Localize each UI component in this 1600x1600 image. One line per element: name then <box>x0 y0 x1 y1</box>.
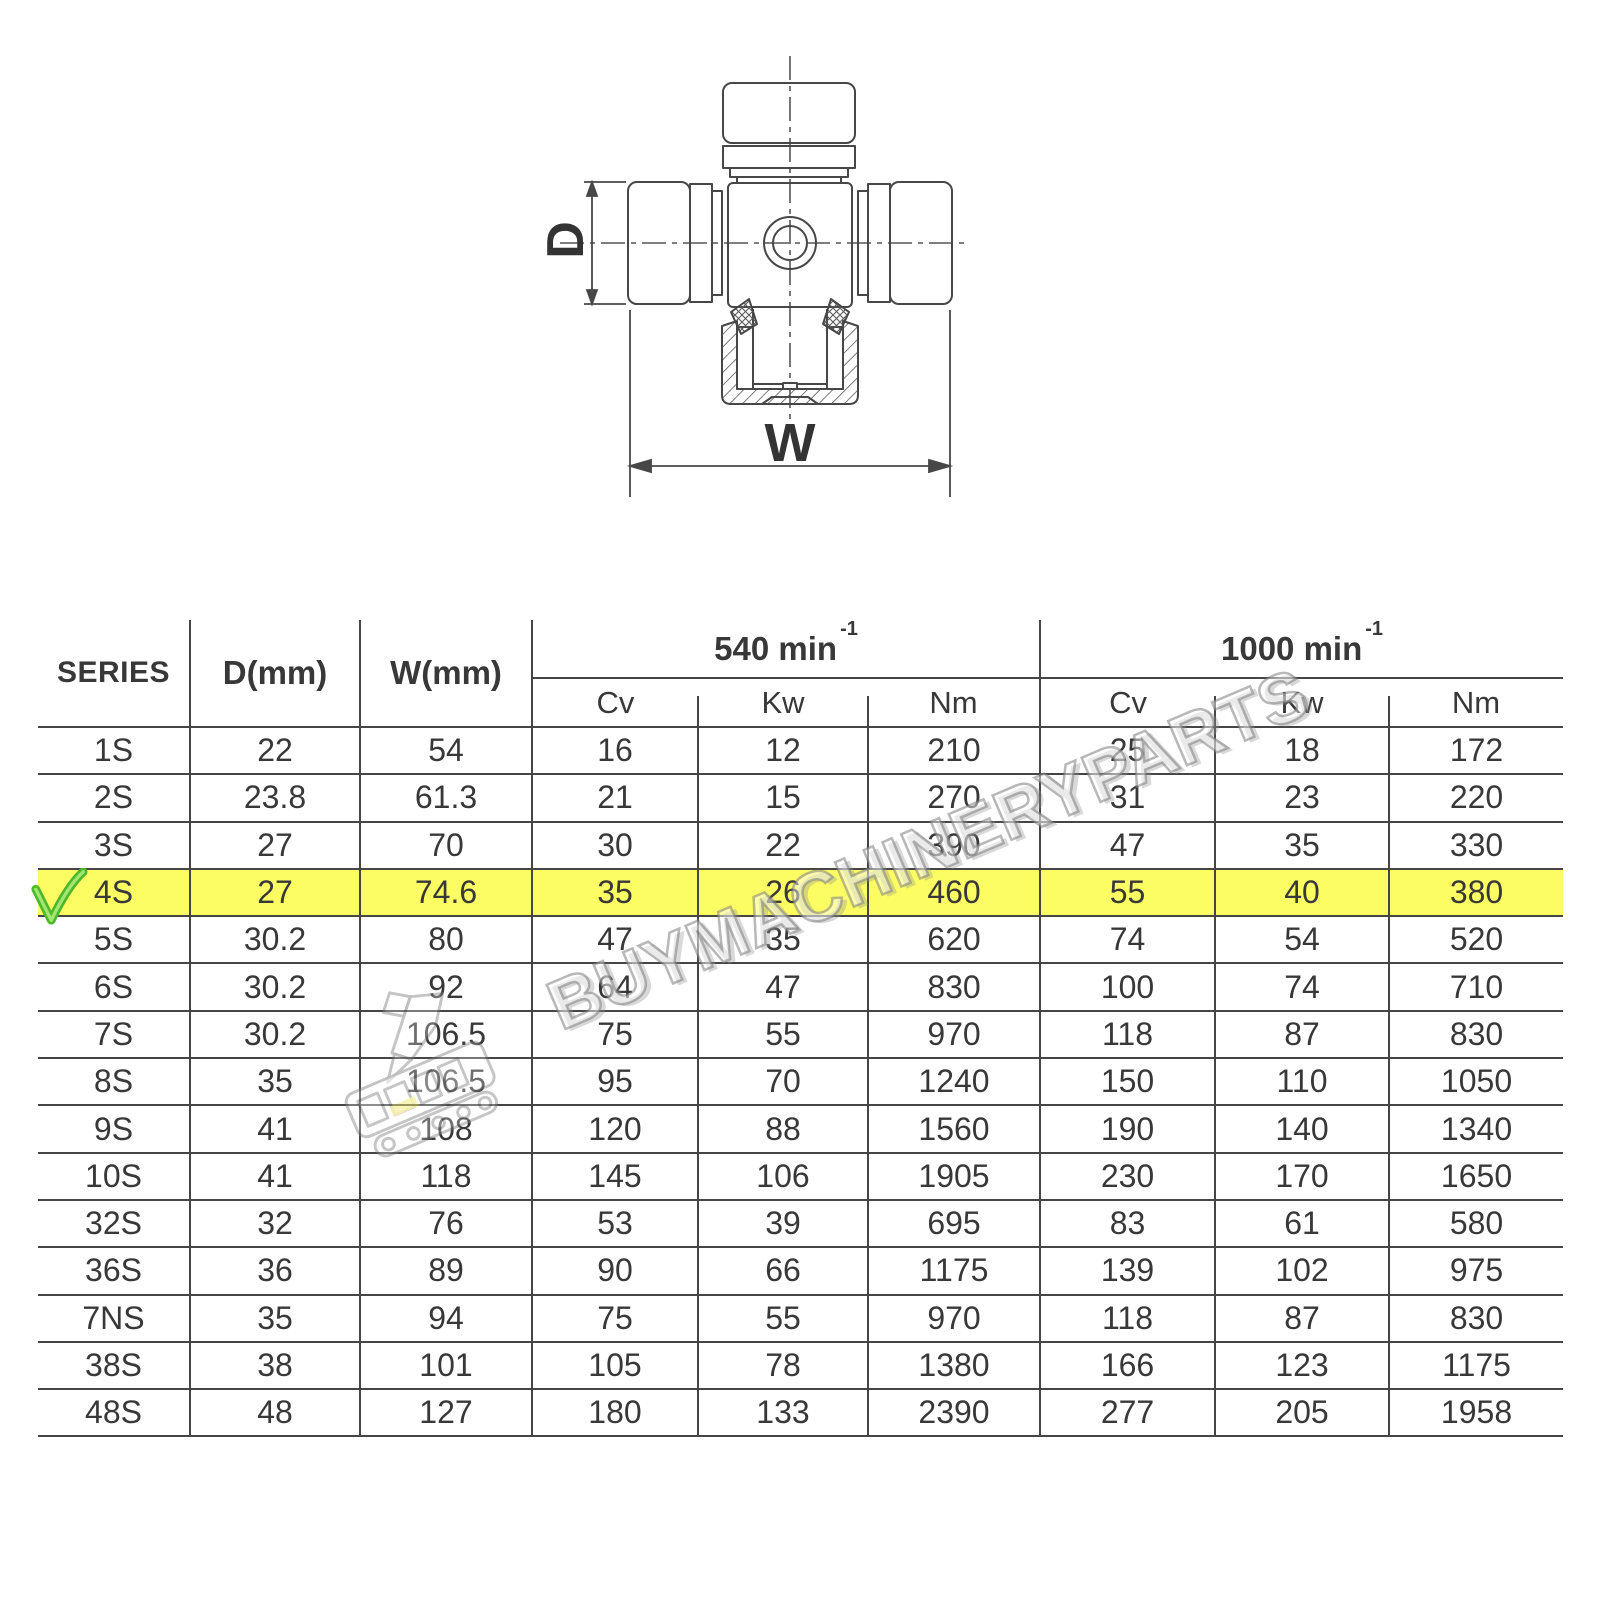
value-cell: 1905 <box>868 1153 1040 1200</box>
spec-sheet: D W BUYMACHINERYPARTS <box>0 0 1600 1600</box>
value-cell: 105 <box>532 1342 698 1389</box>
series-cell: 8S <box>38 1058 190 1105</box>
value-cell: 975 <box>1389 1247 1563 1294</box>
value-cell: 695 <box>868 1200 1040 1247</box>
table-row: 2S23.861.321152703123220 <box>38 774 1563 821</box>
value-cell: 1958 <box>1389 1389 1563 1436</box>
table-row: 10S4111814510619052301701650 <box>38 1153 1563 1200</box>
dimension-label-w: W <box>765 413 816 473</box>
value-cell: 41 <box>190 1105 360 1152</box>
value-cell: 39 <box>698 1200 868 1247</box>
value-cell: 74 <box>1215 963 1389 1010</box>
value-cell: 460 <box>868 869 1040 916</box>
universal-joint-drawing: D W <box>500 40 980 510</box>
header-series: SERIES <box>38 620 190 727</box>
value-cell: 710 <box>1389 963 1563 1010</box>
value-cell: 15 <box>698 774 868 821</box>
value-cell: 53 <box>532 1200 698 1247</box>
header-cv-1000: Cv <box>1040 678 1215 727</box>
value-cell: 106.5 <box>360 1058 532 1105</box>
needle-roller-left <box>737 327 753 389</box>
value-cell: 127 <box>360 1389 532 1436</box>
value-cell: 118 <box>1040 1295 1215 1342</box>
value-cell: 150 <box>1040 1058 1215 1105</box>
dimension-label-d: D <box>537 221 595 259</box>
series-cell: 2S <box>38 774 190 821</box>
value-cell: 66 <box>698 1247 868 1294</box>
value-cell: 47 <box>532 916 698 963</box>
value-cell: 38 <box>190 1342 360 1389</box>
table-header: SERIES D(mm) W(mm) 540 min-1 1000 min-1 … <box>38 620 1563 727</box>
header-w-mm: W(mm) <box>360 620 532 727</box>
header-nm-540: Nm <box>868 678 1040 727</box>
value-cell: 47 <box>1040 822 1215 869</box>
series-cell: 9S <box>38 1105 190 1152</box>
value-cell: 74.6 <box>360 869 532 916</box>
value-cell: 102 <box>1215 1247 1389 1294</box>
value-cell: 48 <box>190 1389 360 1436</box>
value-cell: 133 <box>698 1389 868 1436</box>
series-cell: 38S <box>38 1342 190 1389</box>
series-cell: 1S <box>38 727 190 774</box>
value-cell: 330 <box>1389 822 1563 869</box>
value-cell: 1175 <box>868 1247 1040 1294</box>
value-cell: 230 <box>1040 1153 1215 1200</box>
series-cell: 7S <box>38 1011 190 1058</box>
table-row: 36S368990661175139102975 <box>38 1247 1563 1294</box>
header-cv-540: Cv <box>532 678 698 727</box>
value-cell: 830 <box>1389 1295 1563 1342</box>
value-cell: 22 <box>190 727 360 774</box>
value-cell: 12 <box>698 727 868 774</box>
value-cell: 36 <box>190 1247 360 1294</box>
trunnion-notch <box>783 383 797 389</box>
header-speed-540: 540 min-1 <box>532 620 1040 678</box>
header-kw-1000: Kw <box>1215 678 1389 727</box>
value-cell: 110 <box>1215 1058 1389 1105</box>
table-row: 8S35106.5957012401501101050 <box>38 1058 1563 1105</box>
value-cell: 1380 <box>868 1342 1040 1389</box>
value-cell: 78 <box>698 1342 868 1389</box>
value-cell: 30.2 <box>190 1011 360 1058</box>
value-cell: 30.2 <box>190 963 360 1010</box>
table-row: 7NS3594755597011887830 <box>38 1295 1563 1342</box>
value-cell: 61.3 <box>360 774 532 821</box>
value-cell: 87 <box>1215 1011 1389 1058</box>
top-bearing-cup <box>723 83 855 183</box>
header-540-exponent: -1 <box>840 618 858 641</box>
value-cell: 970 <box>868 1011 1040 1058</box>
arrow-left-icon <box>630 460 651 472</box>
value-cell: 620 <box>868 916 1040 963</box>
value-cell: 139 <box>1040 1247 1215 1294</box>
value-cell: 100 <box>1040 963 1215 1010</box>
value-cell: 30.2 <box>190 916 360 963</box>
table-body: 1S2254161221025181722S23.861.32115270312… <box>38 727 1563 1436</box>
series-cell: 4S <box>38 869 190 916</box>
value-cell: 390 <box>868 822 1040 869</box>
value-cell: 75 <box>532 1295 698 1342</box>
value-cell: 830 <box>868 963 1040 1010</box>
value-cell: 1050 <box>1389 1058 1563 1105</box>
value-cell: 26 <box>698 869 868 916</box>
value-cell: 95 <box>532 1058 698 1105</box>
value-cell: 35 <box>532 869 698 916</box>
table-row: 4S 2774.635264605540380 <box>38 869 1563 916</box>
value-cell: 145 <box>532 1153 698 1200</box>
value-cell: 87 <box>1215 1295 1389 1342</box>
value-cell: 140 <box>1215 1105 1389 1152</box>
table-row: 9S411081208815601901401340 <box>38 1105 1563 1152</box>
value-cell: 180 <box>532 1389 698 1436</box>
header-1000-label: 1000 min <box>1221 630 1362 667</box>
arrow-down-icon <box>587 290 597 304</box>
value-cell: 90 <box>532 1247 698 1294</box>
value-cell: 92 <box>360 963 532 1010</box>
value-cell: 80 <box>360 916 532 963</box>
value-cell: 205 <box>1215 1389 1389 1436</box>
table-row: 6S30.292644783010074710 <box>38 963 1563 1010</box>
series-cell: 48S <box>38 1389 190 1436</box>
value-cell: 35 <box>1215 822 1389 869</box>
value-cell: 170 <box>1215 1153 1389 1200</box>
value-cell: 25 <box>1040 727 1215 774</box>
value-cell: 172 <box>1389 727 1563 774</box>
value-cell: 54 <box>360 727 532 774</box>
value-cell: 970 <box>868 1295 1040 1342</box>
value-cell: 94 <box>360 1295 532 1342</box>
value-cell: 106.5 <box>360 1011 532 1058</box>
value-cell: 118 <box>1040 1011 1215 1058</box>
value-cell: 830 <box>1389 1011 1563 1058</box>
value-cell: 1240 <box>868 1058 1040 1105</box>
spec-table: SERIES D(mm) W(mm) 540 min-1 1000 min-1 … <box>38 620 1563 1437</box>
table-row: 48S4812718013323902772051958 <box>38 1389 1563 1436</box>
value-cell: 61 <box>1215 1200 1389 1247</box>
table-row: 32S327653396958361580 <box>38 1200 1563 1247</box>
value-cell: 83 <box>1040 1200 1215 1247</box>
series-cell: 36S <box>38 1247 190 1294</box>
value-cell: 22 <box>698 822 868 869</box>
value-cell: 220 <box>1389 774 1563 821</box>
value-cell: 120 <box>532 1105 698 1152</box>
series-cell: 6S <box>38 963 190 1010</box>
value-cell: 47 <box>698 963 868 1010</box>
value-cell: 16 <box>532 727 698 774</box>
value-cell: 380 <box>1389 869 1563 916</box>
series-cell: 3S <box>38 822 190 869</box>
table-row: 5S30.28047356207454520 <box>38 916 1563 963</box>
value-cell: 210 <box>868 727 1040 774</box>
value-cell: 23.8 <box>190 774 360 821</box>
header-speed-1000: 1000 min-1 <box>1040 620 1563 678</box>
value-cell: 520 <box>1389 916 1563 963</box>
header-1000-exponent: -1 <box>1365 618 1383 641</box>
value-cell: 55 <box>1040 869 1215 916</box>
value-cell: 277 <box>1040 1389 1215 1436</box>
value-cell: 118 <box>360 1153 532 1200</box>
value-cell: 76 <box>360 1200 532 1247</box>
header-d-mm: D(mm) <box>190 620 360 727</box>
header-540-label: 540 min <box>714 630 837 667</box>
arrow-up-icon <box>587 182 597 196</box>
value-cell: 580 <box>1389 1200 1563 1247</box>
value-cell: 54 <box>1215 916 1389 963</box>
needle-roller-right <box>827 327 843 389</box>
value-cell: 89 <box>360 1247 532 1294</box>
value-cell: 27 <box>190 822 360 869</box>
value-cell: 55 <box>698 1295 868 1342</box>
table-row: 1S225416122102518172 <box>38 727 1563 774</box>
value-cell: 1650 <box>1389 1153 1563 1200</box>
value-cell: 1340 <box>1389 1105 1563 1152</box>
value-cell: 35 <box>190 1058 360 1105</box>
value-cell: 27 <box>190 869 360 916</box>
series-cell: 32S <box>38 1200 190 1247</box>
value-cell: 74 <box>1040 916 1215 963</box>
value-cell: 41 <box>190 1153 360 1200</box>
value-cell: 106 <box>698 1153 868 1200</box>
value-cell: 64 <box>532 963 698 1010</box>
table-row: 7S30.2106.5755597011887830 <box>38 1011 1563 1058</box>
value-cell: 101 <box>360 1342 532 1389</box>
arrow-right-icon <box>929 460 950 472</box>
value-cell: 31 <box>1040 774 1215 821</box>
value-cell: 166 <box>1040 1342 1215 1389</box>
value-cell: 18 <box>1215 727 1389 774</box>
value-cell: 40 <box>1215 869 1389 916</box>
series-cell: 7NS <box>38 1295 190 1342</box>
value-cell: 1175 <box>1389 1342 1563 1389</box>
header-nm-1000: Nm <box>1389 678 1563 727</box>
series-cell: 5S <box>38 916 190 963</box>
value-cell: 190 <box>1040 1105 1215 1152</box>
value-cell: 30 <box>532 822 698 869</box>
table-row: 38S381011057813801661231175 <box>38 1342 1563 1389</box>
series-cell: 10S <box>38 1153 190 1200</box>
value-cell: 55 <box>698 1011 868 1058</box>
value-cell: 35 <box>190 1295 360 1342</box>
value-cell: 70 <box>360 822 532 869</box>
value-cell: 35 <box>698 916 868 963</box>
value-cell: 1560 <box>868 1105 1040 1152</box>
value-cell: 88 <box>698 1105 868 1152</box>
value-cell: 75 <box>532 1011 698 1058</box>
value-cell: 32 <box>190 1200 360 1247</box>
value-cell: 270 <box>868 774 1040 821</box>
value-cell: 70 <box>698 1058 868 1105</box>
value-cell: 21 <box>532 774 698 821</box>
value-cell: 108 <box>360 1105 532 1152</box>
header-kw-540: Kw <box>698 678 868 727</box>
value-cell: 2390 <box>868 1389 1040 1436</box>
table-row: 3S277030223904735330 <box>38 822 1563 869</box>
value-cell: 123 <box>1215 1342 1389 1389</box>
value-cell: 23 <box>1215 774 1389 821</box>
